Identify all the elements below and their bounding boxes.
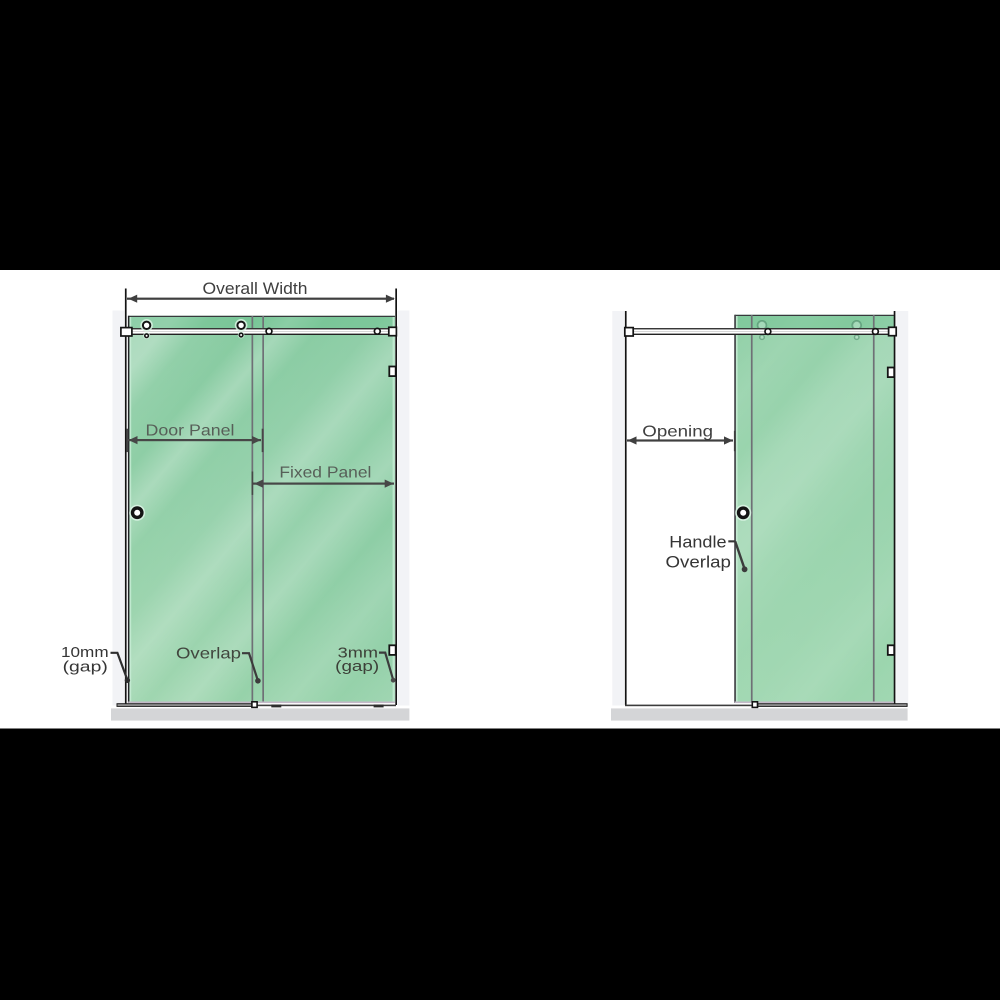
svg-text:Handle: Handle — [669, 533, 726, 551]
svg-text:Opening: Opening — [642, 423, 713, 440]
svg-text:(gap): (gap) — [335, 658, 379, 675]
svg-text:Overall Width: Overall Width — [203, 279, 308, 298]
svg-text:Fixed Panel: Fixed Panel — [279, 465, 371, 482]
svg-text:Overlap: Overlap — [176, 646, 241, 663]
svg-text:Overlap: Overlap — [666, 554, 731, 572]
svg-text:Door Panel: Door Panel — [146, 423, 235, 440]
svg-text:(gap): (gap) — [63, 658, 108, 675]
